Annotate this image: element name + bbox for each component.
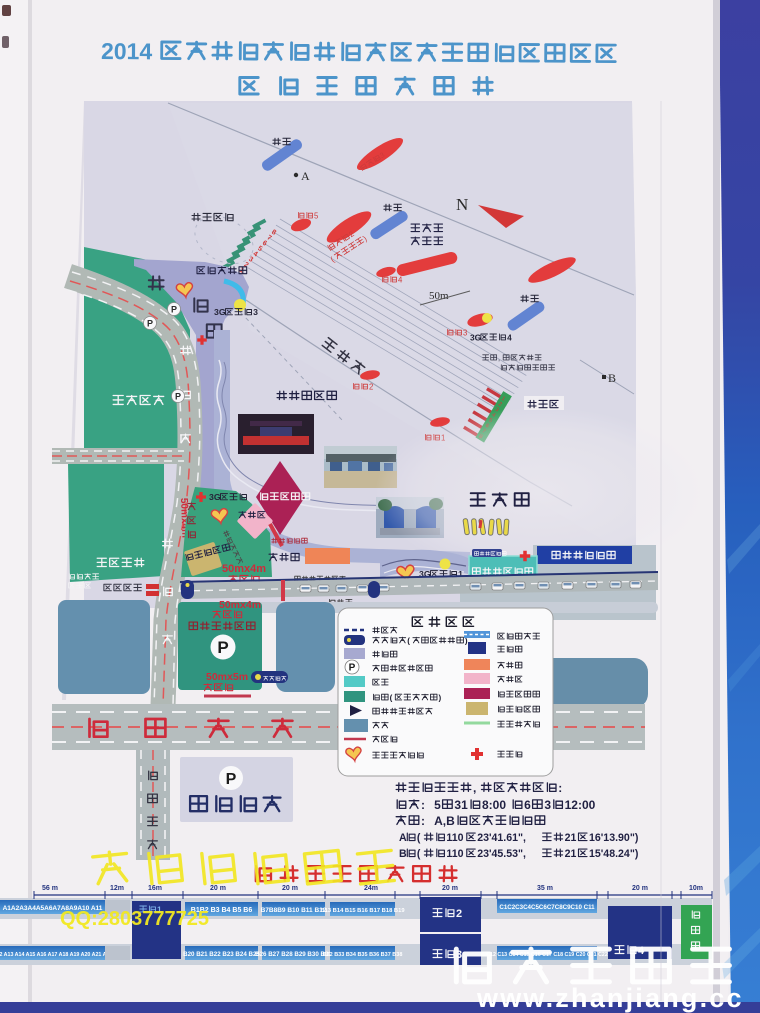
- svg-text:www.zhanjiang.cc: www.zhanjiang.cc: [476, 983, 744, 1013]
